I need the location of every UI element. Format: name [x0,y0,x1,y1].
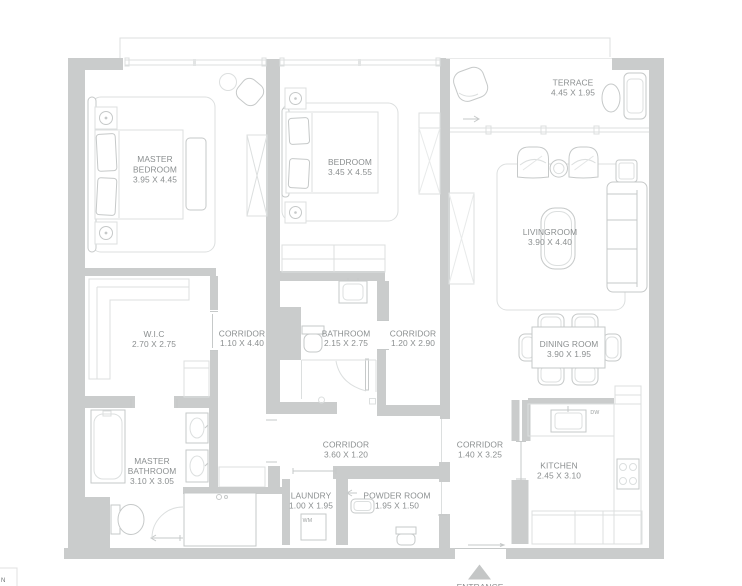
svg-text:CORRIDOR: CORRIDOR [323,440,369,450]
svg-text:1.00 X 1.95: 1.00 X 1.95 [289,501,333,511]
svg-text:3.10 X 3.05: 3.10 X 3.05 [130,476,174,486]
svg-text:MASTER: MASTER [134,456,170,466]
svg-text:LIVINGROOM: LIVINGROOM [523,227,578,237]
svg-text:CORRIDOR: CORRIDOR [457,440,503,450]
svg-text:KITCHEN: KITCHEN [540,461,577,471]
svg-text:2.70 X 2.75: 2.70 X 2.75 [132,339,176,349]
svg-text:3.90 X 4.40: 3.90 X 4.40 [528,237,572,247]
svg-text:BATHROOM: BATHROOM [128,466,177,476]
svg-text:BEDROOM: BEDROOM [133,164,177,174]
svg-text:3.95 X 4.45: 3.95 X 4.45 [133,175,177,185]
svg-text:DINING ROOM: DINING ROOM [540,339,599,349]
svg-text:CORRIDOR: CORRIDOR [390,328,436,338]
svg-text:1.40 X 3.25: 1.40 X 3.25 [458,450,502,460]
svg-text:LAUNDRY: LAUNDRY [291,491,332,501]
svg-text:N: N [1,578,5,584]
svg-text:3.90 X 1.95: 3.90 X 1.95 [547,349,591,359]
svg-text:WM: WM [303,518,313,524]
svg-text:BEDROOM: BEDROOM [328,157,372,167]
svg-text:POWDER ROOM: POWDER ROOM [363,491,430,501]
svg-text:1.95 X 1.50: 1.95 X 1.50 [375,501,419,511]
svg-text:1.10 X 4.40: 1.10 X 4.40 [220,338,264,348]
svg-text:3.45 X 4.55: 3.45 X 4.55 [328,167,372,177]
svg-text:2.15 X 2.75: 2.15 X 2.75 [324,338,368,348]
svg-text:4.45 X 1.95: 4.45 X 1.95 [551,87,595,97]
svg-text:ENTRANCE: ENTRANCE [457,582,504,586]
svg-text:BATHROOM: BATHROOM [322,328,371,338]
svg-text:MASTER: MASTER [137,154,173,164]
svg-text:3.60 X 1.20: 3.60 X 1.20 [324,450,368,460]
svg-text:TERRACE: TERRACE [553,77,594,87]
svg-text:1.20 X 2.90: 1.20 X 2.90 [391,338,435,348]
svg-text:2.45 X 3.10: 2.45 X 3.10 [537,471,581,481]
svg-text:DW: DW [590,410,599,416]
svg-text:W.I.C: W.I.C [144,329,165,339]
svg-text:CORRIDOR: CORRIDOR [219,328,265,338]
